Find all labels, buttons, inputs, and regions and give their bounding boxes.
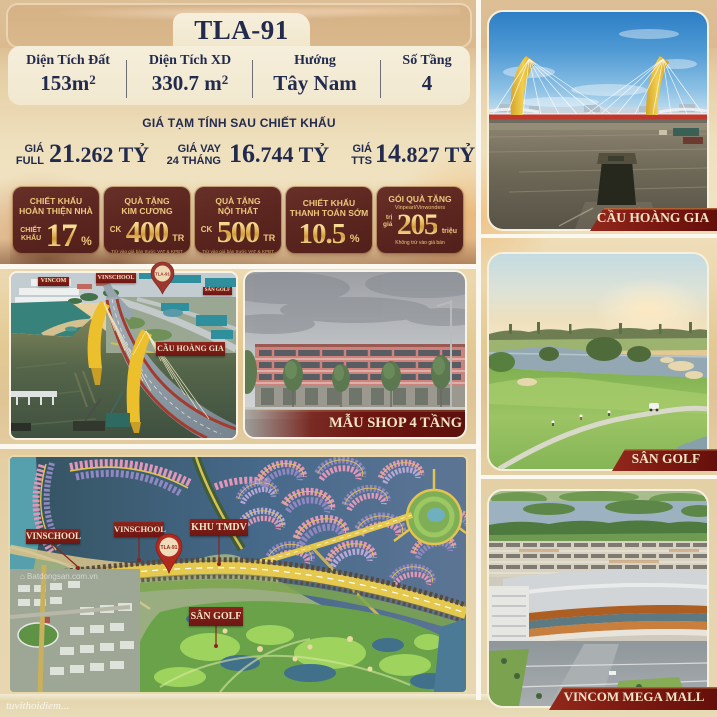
svg-text:TLA-91: TLA-91	[161, 545, 178, 551]
svg-text:TLA-91: TLA-91	[155, 272, 170, 277]
